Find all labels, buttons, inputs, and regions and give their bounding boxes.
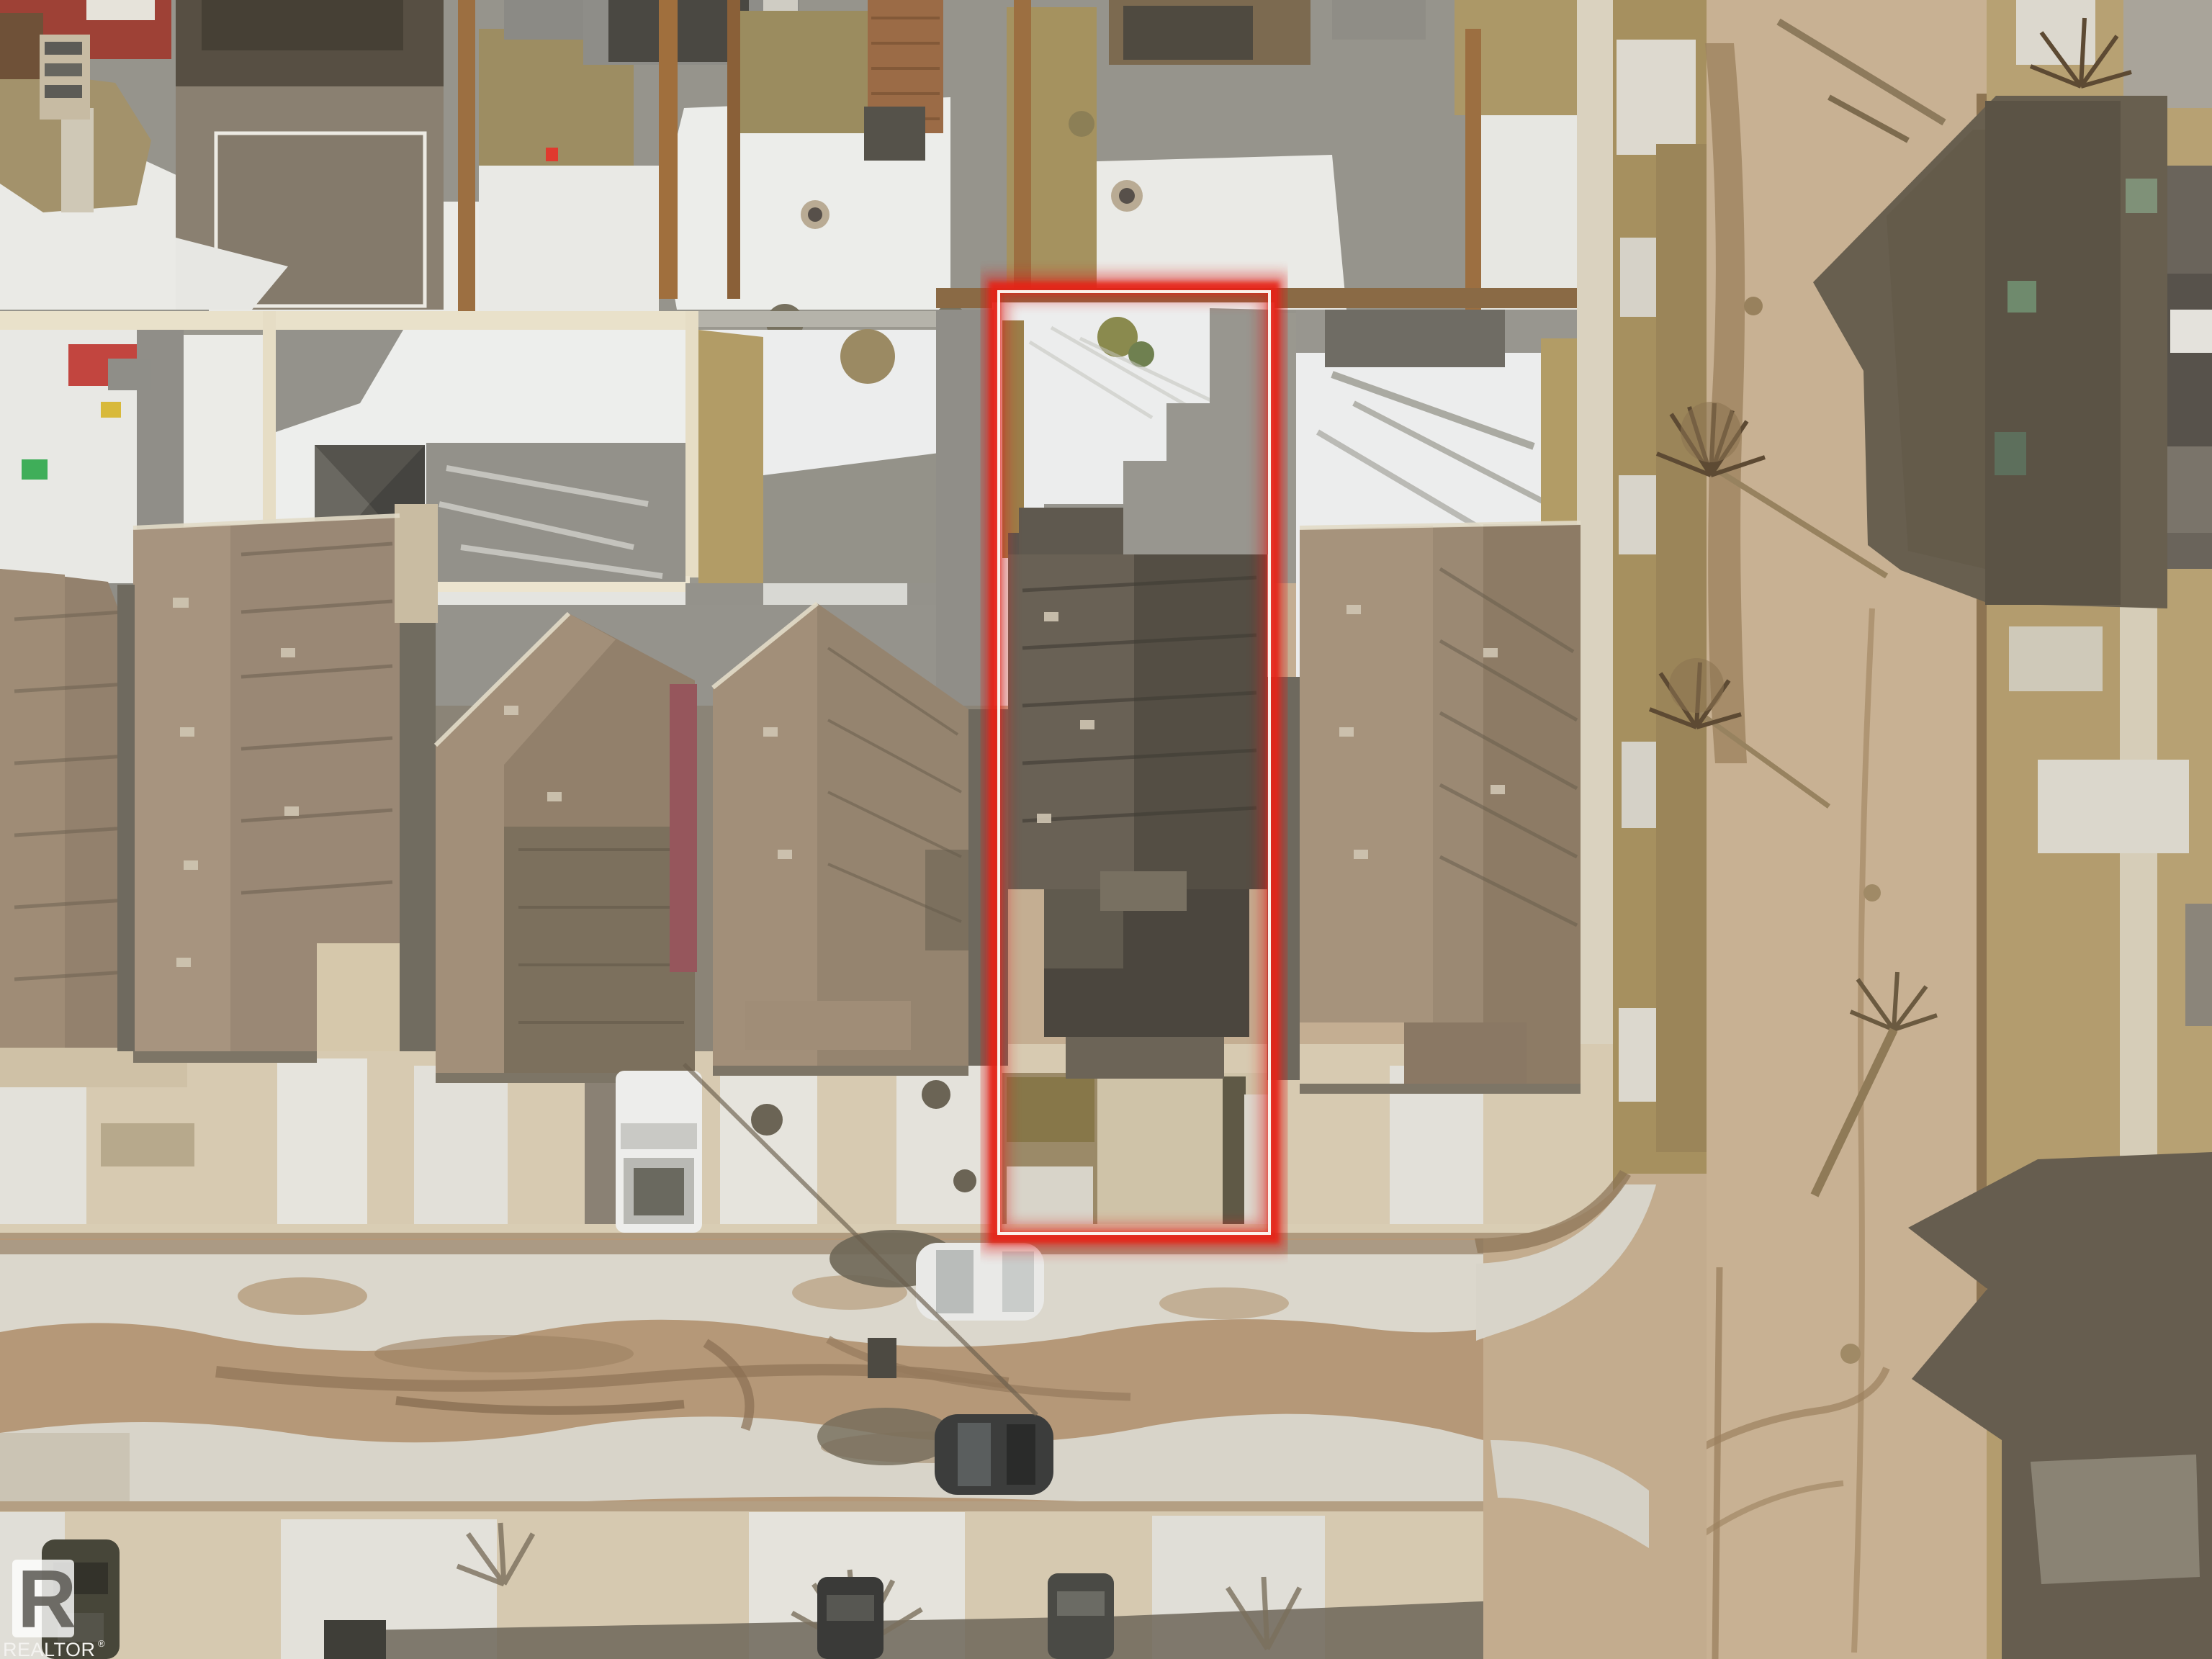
svg-text:®: ® [98,1638,105,1649]
svg-text:R: R [17,1554,76,1645]
svg-text:REALTOR: REALTOR [3,1639,96,1659]
